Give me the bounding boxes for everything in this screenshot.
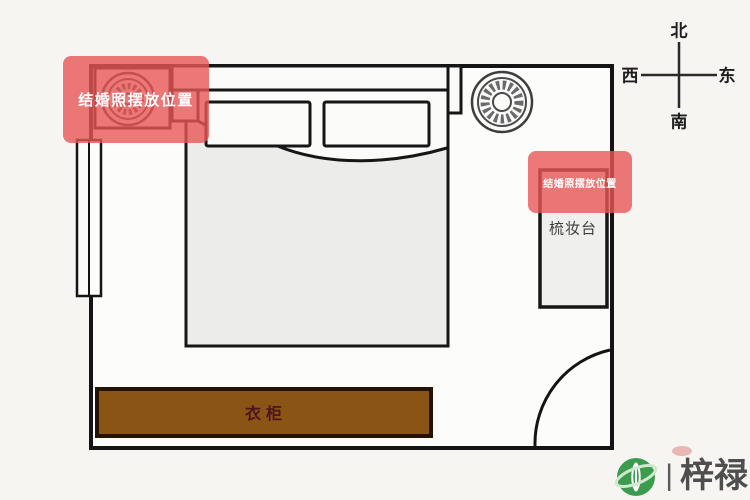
watermark-separator: | — [665, 461, 673, 491]
photo-spot-dresser-label: 结婚照摆放位置 — [543, 175, 617, 190]
photo-spot-highlight-dresser: 结婚照摆放位置 — [528, 151, 632, 213]
floorplan-canvas: 北 南 西 东 衣柜 梳妆台 结婚照摆放位置 结婚照摆放位置 | 梓禄 — [0, 0, 750, 500]
photo-spot-highlight-bedside: 结婚照摆放位置 — [63, 56, 209, 143]
compass-west-label: 西 — [622, 62, 639, 87]
wardrobe-label: 衣柜 — [245, 400, 287, 424]
globe-leaf-icon — [614, 454, 658, 498]
window-symbol — [77, 140, 101, 296]
watermark-brand: 梓禄 — [680, 459, 748, 493]
compass-east-label: 东 — [719, 62, 736, 87]
photo-spot-bedside-label: 结婚照摆放位置 — [78, 89, 194, 110]
dressing-table-label: 梳妆台 — [549, 218, 597, 239]
bed — [172, 66, 461, 346]
pillow-right — [324, 102, 429, 146]
headboard — [172, 66, 448, 90]
compass-north-label: 北 — [671, 17, 688, 42]
headboard-right-step — [448, 66, 461, 113]
pillow-left — [206, 102, 310, 146]
watermark: | 梓禄 — [614, 454, 748, 498]
compass-south-label: 南 — [671, 108, 688, 133]
compass-cross — [641, 42, 717, 108]
fan-icon — [472, 72, 532, 132]
